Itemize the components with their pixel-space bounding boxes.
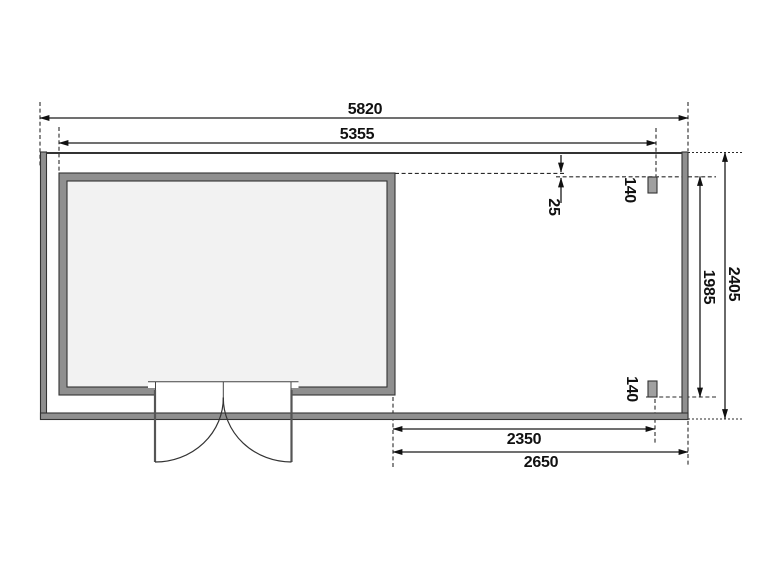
cabin-room xyxy=(59,173,395,398)
door-left-swing-arc xyxy=(155,398,223,463)
post-top xyxy=(648,177,657,193)
dim-label-bottom-outer: 2650 xyxy=(524,454,559,471)
right-wall xyxy=(682,152,688,419)
cabin-interior xyxy=(67,181,387,387)
double-door xyxy=(155,390,292,462)
left-wall xyxy=(41,152,47,419)
dim-label-right-outer: 2405 xyxy=(725,267,742,302)
post-bottom xyxy=(648,381,657,397)
dim-label-post-bottom: 140 xyxy=(623,376,640,402)
dim-label-offset: 25 xyxy=(545,198,562,216)
dim-label-bottom-inner: 2350 xyxy=(507,431,542,448)
floor-plan-drawing: 5820 5355 2350 2650 1985 2405 25 140 140 xyxy=(0,0,772,579)
dim-label-right-inner: 1985 xyxy=(700,270,717,305)
posts xyxy=(648,177,657,397)
floor-plan-page: 5820 5355 2350 2650 1985 2405 25 140 140 xyxy=(0,0,772,579)
dim-label-post-top: 140 xyxy=(621,177,638,203)
dim-label-top-inner: 5355 xyxy=(340,126,375,143)
dim-label-top-outer: 5820 xyxy=(348,101,383,118)
door-right-swing-arc xyxy=(223,398,291,463)
platform-bottom-edge xyxy=(41,413,689,420)
